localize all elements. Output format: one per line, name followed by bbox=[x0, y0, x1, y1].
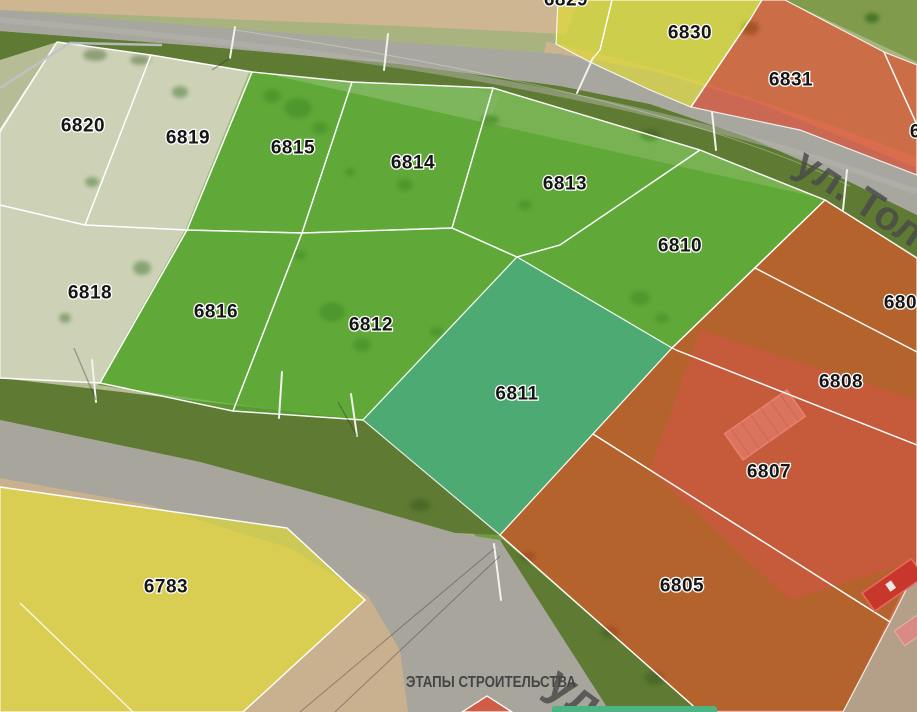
construction-stages-label: ЭТАПЫ СТРОИТЕЛЬСТВА bbox=[406, 674, 576, 691]
plot-label-6807: 6807 bbox=[747, 462, 791, 483]
bottom-action-bar[interactable] bbox=[552, 706, 717, 712]
plot-label-6832: 6832 bbox=[910, 122, 917, 143]
plot-label-6808: 6808 bbox=[819, 372, 863, 393]
plot-map[interactable]: 6829 6830 6831 6832 6820 6819 6815 6814 … bbox=[0, 0, 917, 712]
plot-label-6820: 6820 bbox=[61, 116, 105, 137]
plot-label-6818: 6818 bbox=[68, 283, 112, 304]
plot-label-6831: 6831 bbox=[769, 70, 813, 91]
plot-label-6810: 6810 bbox=[658, 236, 702, 257]
plot-label-6814: 6814 bbox=[391, 153, 435, 174]
plot-label-6805: 6805 bbox=[660, 576, 704, 597]
plot-label-6819: 6819 bbox=[166, 128, 210, 149]
plot-label-6811: 6811 bbox=[495, 384, 538, 405]
plot-label-6829: 6829 bbox=[544, 0, 588, 11]
plot-label-6809: 6809 bbox=[884, 293, 917, 314]
plot-label-6830: 6830 bbox=[668, 23, 712, 44]
plot-label-6815: 6815 bbox=[271, 138, 315, 159]
plot-label-6812: 6812 bbox=[349, 315, 393, 336]
plot-label-6816: 6816 bbox=[194, 302, 238, 323]
plot-label-6783: 6783 bbox=[144, 577, 188, 598]
plot-label-6813: 6813 bbox=[543, 174, 587, 195]
